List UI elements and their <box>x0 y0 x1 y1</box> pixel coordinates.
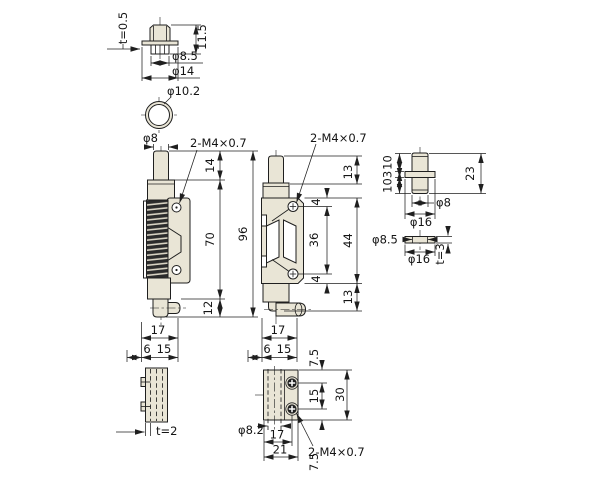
pin-detail-view: 10 3 10 23 φ8 φ16 <box>381 147 487 229</box>
latch-lower-body <box>148 278 171 299</box>
dim-side-plate-w: 15 <box>277 342 292 356</box>
dim-plate-edge-thickness: t=2 <box>156 424 177 438</box>
dim-front-width: 17 <box>151 323 166 337</box>
dim-top-outer-dia: φ10.2 <box>167 84 200 98</box>
dim-front-total-len: 96 <box>236 227 250 242</box>
dim-plate-thread: 2-M4×0.7 <box>308 445 365 459</box>
dim-front-tail-len: 12 <box>201 301 215 316</box>
dim-pin-flange-dia: φ16 <box>410 215 432 229</box>
cap-detail-view: t=0.5 11.5 φ8.5 φ14 <box>107 12 209 81</box>
dim-cap-thickness: t=0.5 <box>116 12 130 44</box>
dim-plate-width: 21 <box>273 443 288 457</box>
slot-right <box>284 220 297 263</box>
latch-upper-body <box>148 180 175 200</box>
dim-side-hole-pitch: 36 <box>307 233 321 248</box>
dim-plate-hole-offset: 17 <box>270 428 285 442</box>
dim-plate-height: 30 <box>333 387 347 402</box>
side-view: 2-M4×0.7 4 36 4 13 44 13 17 6 15 <box>248 131 367 362</box>
top-circle-view: φ10.2 <box>141 84 200 133</box>
dim-side-plate-len: 44 <box>341 233 355 248</box>
plate-edge-view: t=2 <box>116 368 177 438</box>
dim-plate-hole-dia: φ8.2 <box>238 423 264 437</box>
dim-front-offset: 6 <box>143 342 150 356</box>
latch-upper-body <box>263 183 289 200</box>
dim-plate-top-margin: 7.5 <box>307 349 321 367</box>
dim-pin-top-len: 10 <box>381 155 395 170</box>
dim-plate-hole-pitch: 15 <box>307 389 321 404</box>
dim-front-body-len: 70 <box>203 232 217 247</box>
dim-side-top-gap: 13 <box>341 165 355 180</box>
latch-bolt-drawing: t=0.5 11.5 φ8.5 φ14 φ10.2 <box>0 0 600 480</box>
dim-washer-outer-dia: φ16 <box>408 252 430 266</box>
cap-body <box>150 25 170 41</box>
latch-pin-top <box>154 151 169 180</box>
washer-detail-view: φ8.5 φ16 t=3 <box>372 228 452 266</box>
dim-pin-flange-t: 3 <box>381 171 395 178</box>
dim-pin-dia: φ8 <box>436 196 451 210</box>
dim-side-thread: 2-M4×0.7 <box>310 131 367 145</box>
dim-front-plate-w: 15 <box>157 342 172 356</box>
dim-cap-flange-dia: φ14 <box>172 64 194 78</box>
bolt-inner-circle <box>149 105 170 126</box>
cap-flange <box>142 41 178 45</box>
dim-cap-inner-dia: φ8.5 <box>172 49 198 63</box>
spring <box>147 200 169 278</box>
dim-washer-hole-dia: φ8.5 <box>372 233 398 247</box>
dim-front-pin-dia: φ8 <box>143 131 158 145</box>
front-view: φ8 2-M4×0.7 14 70 12 96 17 6 15 <box>127 131 258 362</box>
dim-front-thread: 2-M4×0.7 <box>190 136 247 150</box>
dim-pin-total-len: 23 <box>463 166 477 181</box>
dim-pin-bottom-len: 10 <box>381 178 395 193</box>
dim-side-width: 17 <box>271 323 286 337</box>
drawing-canvas: t=0.5 11.5 φ8.5 φ14 φ10.2 <box>0 0 600 480</box>
dim-washer-thickness: t=3 <box>433 243 447 264</box>
dim-side-bottom-gap: 13 <box>341 290 355 305</box>
dim-cap-height: 11.5 <box>195 24 209 50</box>
plate-face-view: 7.5 15 7.5 30 φ8.2 17 21 2-M4×0.7 <box>238 349 365 471</box>
dim-side-hole-edge-bottom: 4 <box>309 275 323 282</box>
latch-pin-top <box>269 156 284 183</box>
dim-front-pin-len: 14 <box>203 158 217 173</box>
dim-side-hole-edge-top: 4 <box>309 198 323 205</box>
slot-left <box>267 220 280 263</box>
pin-flange <box>405 172 435 178</box>
dim-side-offset: 6 <box>263 342 270 356</box>
latch-lower-body <box>263 284 289 303</box>
